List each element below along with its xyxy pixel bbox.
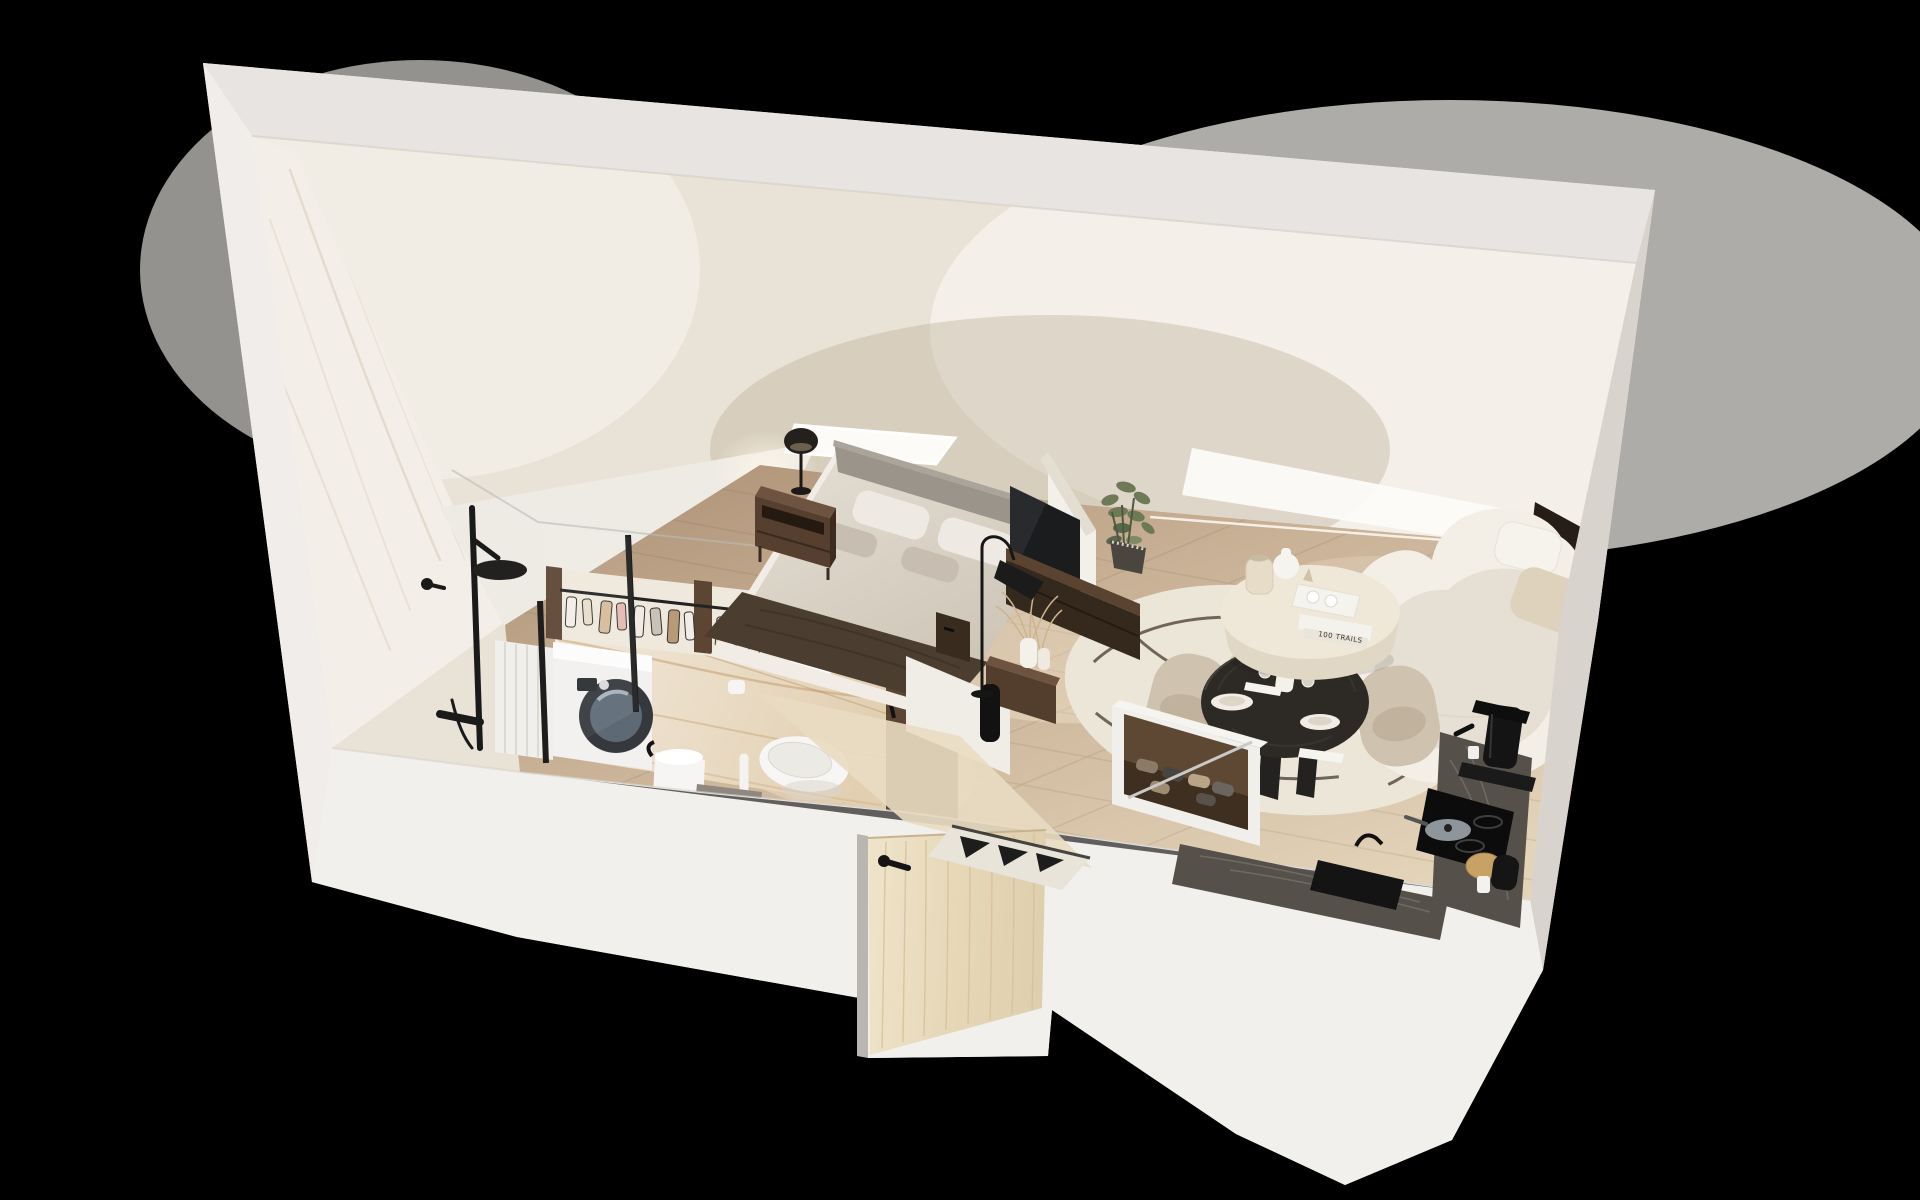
ceramic-vase [1246, 558, 1273, 594]
cup [1325, 595, 1337, 607]
rain-shower-head [473, 560, 527, 580]
render-stage: 100 TRAILS [0, 0, 1920, 1200]
toilet-paper-holder [728, 680, 745, 694]
apartment-cutaway-render: 100 TRAILS [0, 0, 1920, 1200]
lamp-base [791, 487, 811, 495]
wardrobe-panel [694, 580, 712, 654]
white-vase [1020, 638, 1037, 668]
white-vase [1038, 648, 1050, 670]
mug [1477, 876, 1490, 893]
cup [1307, 591, 1319, 603]
door-frame [857, 834, 868, 1058]
espresso-cup [1468, 746, 1479, 759]
